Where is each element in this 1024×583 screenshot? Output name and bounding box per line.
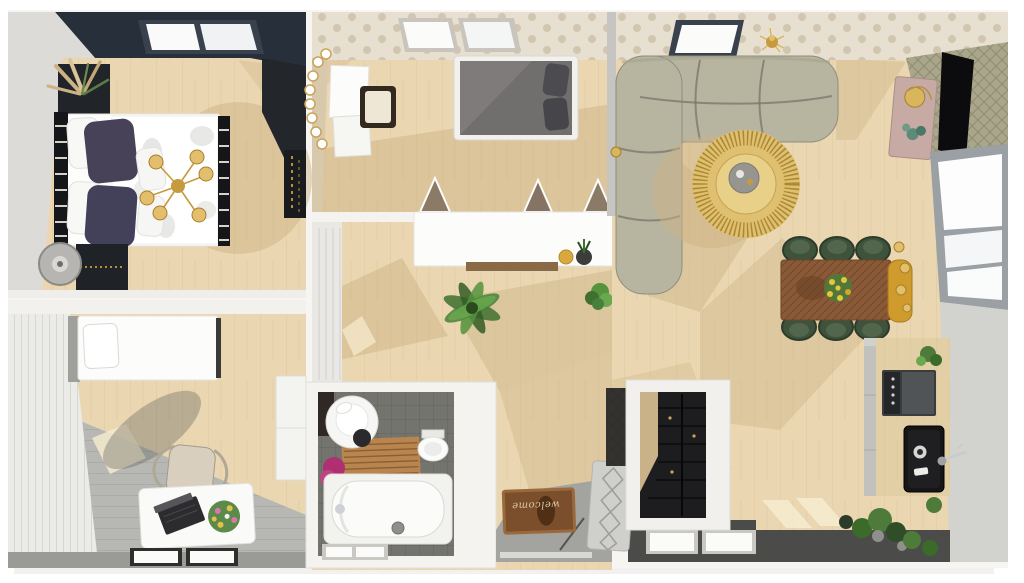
tub-faucet	[335, 504, 345, 514]
black-pot-plant[interactable]	[576, 239, 592, 265]
tub-drain	[392, 522, 404, 534]
bed-footboard-rail	[218, 116, 230, 246]
table-tray	[729, 163, 759, 193]
room-office	[8, 300, 306, 568]
bathroom-window[interactable]	[322, 544, 388, 560]
single-bed[interactable]	[68, 316, 221, 382]
bedroom-skylight-pane[interactable]	[200, 24, 257, 50]
hallway-wainscot-wall	[312, 222, 342, 386]
floor-lamp[interactable]	[39, 243, 81, 285]
floor-plan-canvas: welcome	[0, 0, 1024, 583]
room-closet	[626, 380, 730, 530]
round-sink[interactable]	[326, 396, 378, 448]
toilet[interactable]	[418, 430, 448, 461]
bathtub[interactable]	[324, 474, 452, 544]
fringe-coffee-table[interactable]	[692, 130, 800, 238]
bedroom-clothes-rack[interactable]	[284, 150, 306, 218]
living-divider-wall	[607, 12, 616, 216]
bed-headboard-rail	[54, 112, 68, 246]
table-bouquet	[824, 274, 852, 302]
office-top-wall	[8, 300, 306, 314]
pillow-gray	[542, 97, 569, 131]
door-threshold	[500, 552, 592, 558]
tv-sideboard[interactable]	[889, 76, 938, 159]
living-skylight[interactable]	[668, 20, 744, 58]
wall-sconce[interactable]	[611, 147, 621, 157]
doormat-text: welcome	[511, 498, 560, 511]
closet-handle	[692, 434, 695, 437]
living-right-wall	[940, 302, 1008, 562]
floor-plan-svg: welcome	[0, 0, 1024, 583]
bedroom-bottom-wall	[8, 290, 306, 298]
doormat: welcome	[503, 489, 574, 533]
console-wood-shelf	[466, 262, 558, 271]
dining-chairs-top	[783, 237, 890, 263]
room-kids-bedroom	[305, 12, 612, 222]
stove	[882, 370, 936, 416]
hallway-console[interactable]	[414, 212, 624, 271]
pillow-navy	[84, 184, 138, 247]
bedroom-skylight-pane[interactable]	[146, 24, 200, 50]
vanity-stool[interactable]	[360, 86, 396, 128]
desk[interactable]	[139, 483, 256, 549]
kids-bed[interactable]	[454, 56, 578, 140]
room-bathroom	[306, 382, 496, 568]
pillow-gray	[542, 62, 570, 97]
room-bedroom	[8, 12, 312, 298]
pillow-navy	[83, 118, 139, 185]
gold-vase[interactable]	[559, 250, 573, 264]
dining-table	[781, 260, 891, 320]
window-wall[interactable]	[930, 144, 1008, 310]
pillow	[83, 323, 119, 369]
closet-handle	[670, 470, 673, 473]
closet-handle	[668, 416, 671, 419]
kitchen-cabinet-face	[864, 346, 878, 496]
